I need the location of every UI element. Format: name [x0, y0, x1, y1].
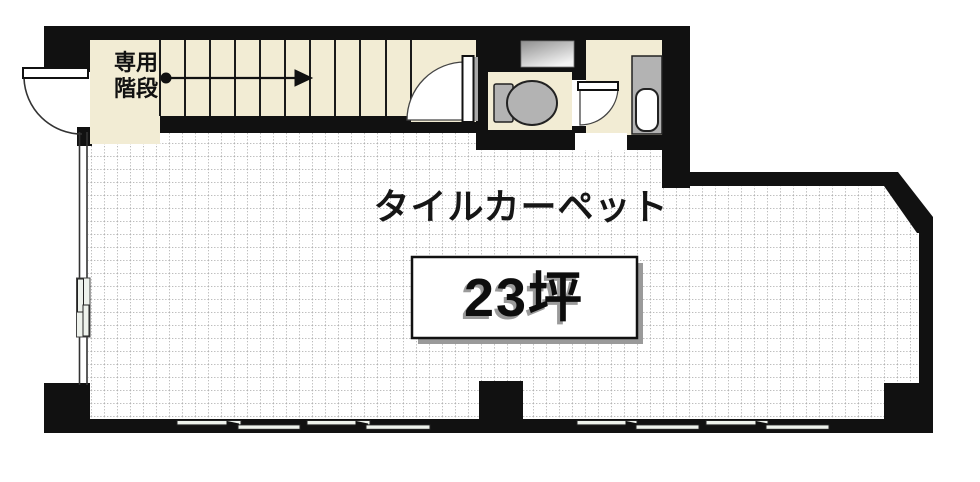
washroom-door-leaf: [578, 82, 618, 90]
entrance-door-leaf: [23, 68, 88, 78]
window-sash: [636, 425, 699, 429]
left-window-sash-2: [83, 305, 89, 336]
wall-top-left-corner: [44, 26, 90, 72]
window-sash: [238, 425, 300, 429]
room-finish-label: タイルカーペット: [374, 186, 669, 227]
floor-plan-svg: 専用 階段 タイルカーペット 23坪 23坪: [0, 0, 980, 482]
wall-bottom-left-block: [44, 383, 90, 433]
wall-right-horizontal: [662, 172, 893, 186]
stairs-label-line1: 専用: [114, 50, 158, 75]
wall-top: [44, 26, 690, 40]
toilet-bowl: [507, 81, 557, 125]
stairs-label-line2: 階段: [114, 76, 159, 101]
washroom-basin: [636, 89, 658, 131]
floor-plan: 専用 階段 タイルカーペット 23坪 23坪: [0, 0, 980, 482]
wall-bottom-column: [479, 381, 523, 433]
toilet-window: [521, 41, 574, 67]
window-sash: [366, 425, 430, 429]
landing-door-leaf: [463, 56, 474, 122]
wall-east-of-washroom: [662, 26, 690, 188]
window-sash: [766, 425, 829, 429]
area-label: 23坪: [464, 268, 584, 328]
washroom-entry-opening: [575, 133, 627, 150]
